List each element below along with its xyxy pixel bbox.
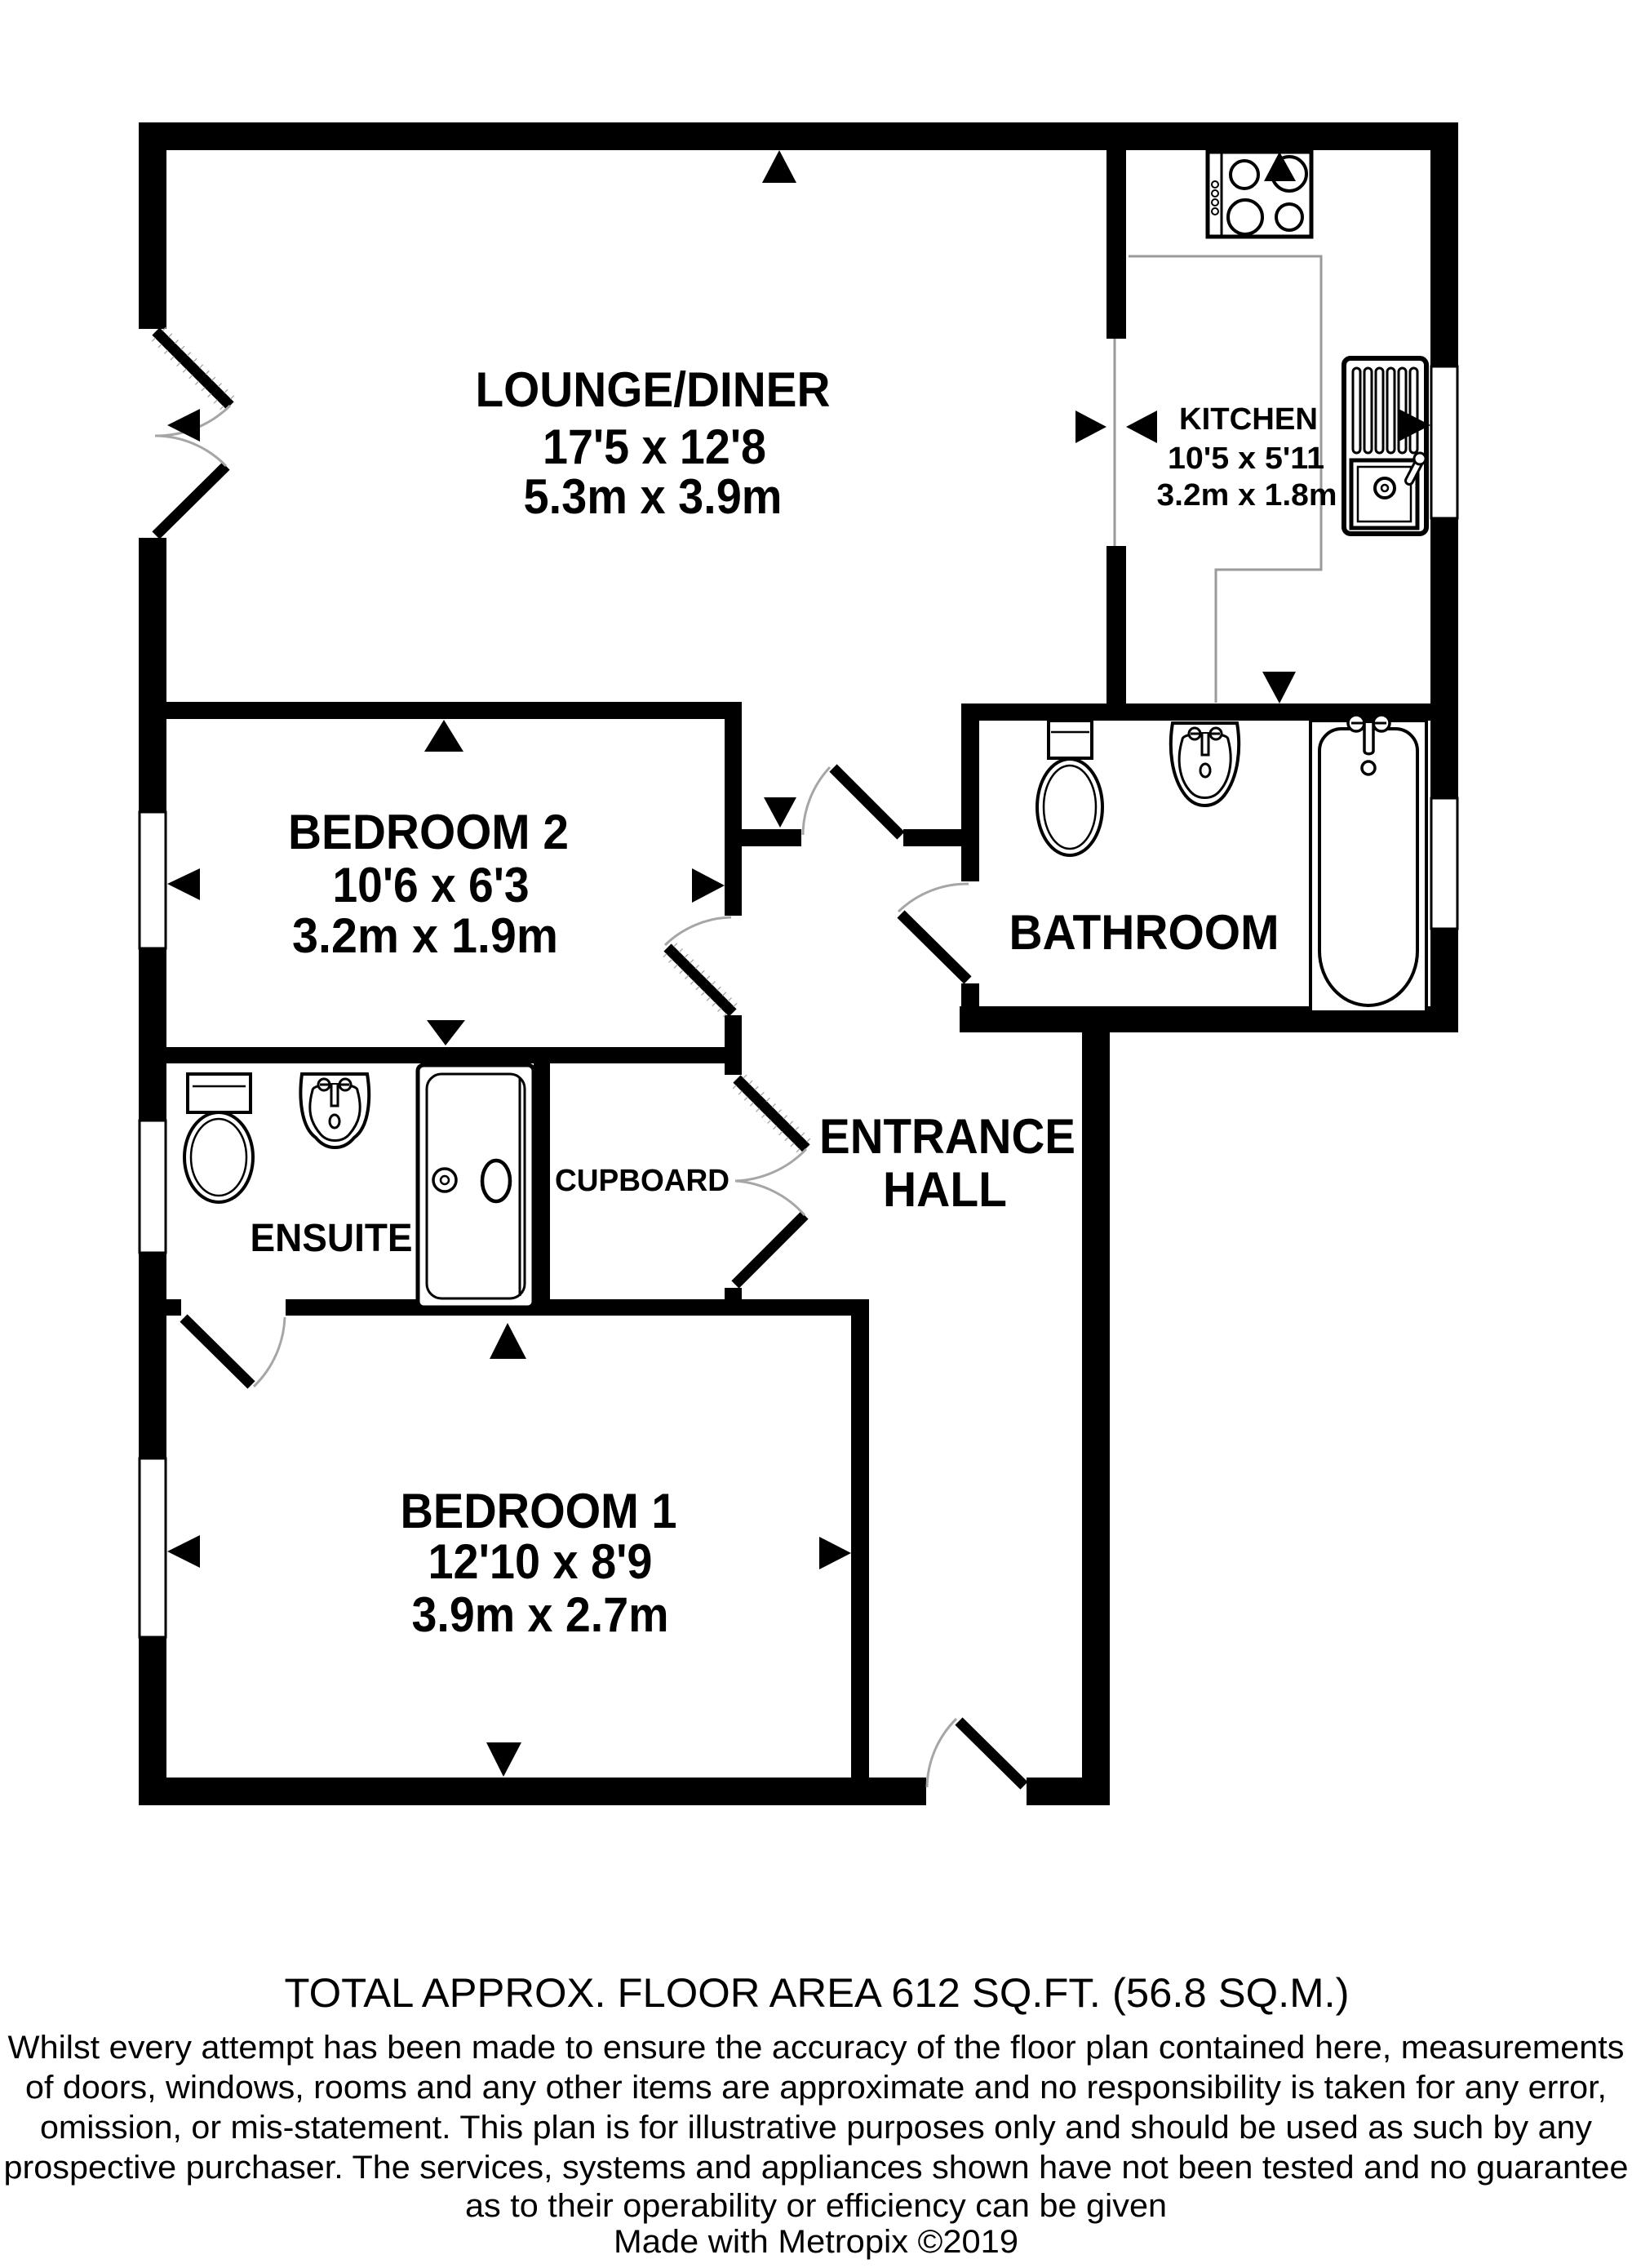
svg-text:12'10 x 8'9: 12'10 x 8'9 <box>428 1534 653 1589</box>
svg-text:HALL: HALL <box>883 1162 1007 1217</box>
svg-text:BATHROOM: BATHROOM <box>1009 905 1279 960</box>
svg-text:prospective purchaser. The ser: prospective purchaser. The services, sys… <box>4 2150 1629 2186</box>
svg-text:ENSUITE: ENSUITE <box>251 1217 413 1260</box>
svg-text:LOUNGE/DINER: LOUNGE/DINER <box>476 362 831 417</box>
svg-text:Whilst every attempt has been: Whilst every attempt has been made to en… <box>8 2030 1625 2066</box>
svg-text:omission, or mis-statement. Th: omission, or mis-statement. This plan is… <box>40 2110 1592 2146</box>
svg-text:as to their operability or eff: as to their operability or efficiency ca… <box>465 2188 1167 2224</box>
svg-text:10'6 x 6'3: 10'6 x 6'3 <box>333 858 530 912</box>
svg-text:10'5 x 5'11: 10'5 x 5'11 <box>1168 442 1324 476</box>
svg-text:ENTRANCE: ENTRANCE <box>819 1109 1075 1164</box>
svg-text:17'5 x 12'8: 17'5 x 12'8 <box>543 419 766 474</box>
svg-text:KITCHEN: KITCHEN <box>1179 402 1318 437</box>
svg-text:3.2m x 1.9m: 3.2m x 1.9m <box>292 908 558 963</box>
svg-text:BEDROOM 1: BEDROOM 1 <box>401 1484 677 1538</box>
svg-text:BEDROOM 2: BEDROOM 2 <box>288 805 569 859</box>
svg-text:3.9m x 2.7m: 3.9m x 2.7m <box>412 1587 669 1642</box>
svg-text:3.2m x 1.8m: 3.2m x 1.8m <box>1157 478 1337 513</box>
svg-text:5.3m x 3.9m: 5.3m x 3.9m <box>524 469 783 524</box>
svg-text:of doors, windows, rooms and a: of doors, windows, rooms and any other i… <box>25 2070 1607 2106</box>
svg-text:Made with Metropix ©2019: Made with Metropix ©2019 <box>614 2224 1018 2260</box>
svg-text:TOTAL APPROX. FLOOR AREA 612 S: TOTAL APPROX. FLOOR AREA 612 SQ.FT. (56.… <box>285 1970 1350 2016</box>
svg-text:CUPBOARD: CUPBOARD <box>555 1164 730 1198</box>
